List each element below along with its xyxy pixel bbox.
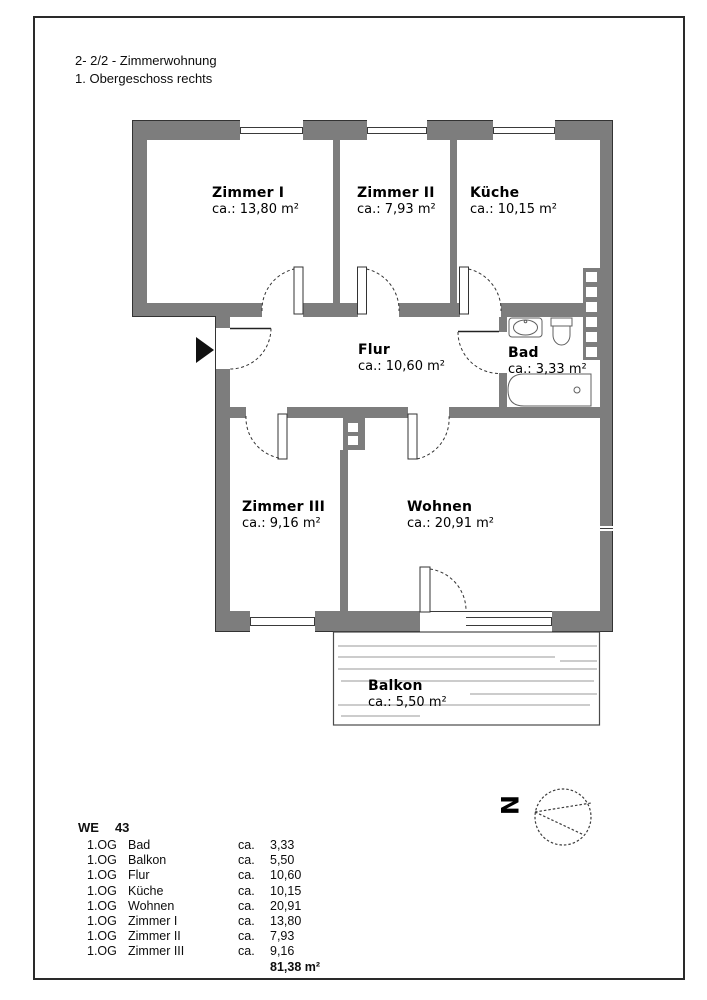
table-row: 1.OGZimmer IIca.7,93 bbox=[87, 929, 340, 944]
unit-heading: WE43 bbox=[78, 820, 129, 835]
table-row: 1.OGBalkonca.5,50 bbox=[87, 853, 340, 868]
door-zimmer1 bbox=[262, 267, 303, 314]
room-area: ca.: 7,93 m² bbox=[357, 201, 436, 219]
area-table: 1.OGBadca.3,33 1.OGBalkonca.5,50 1.OGFlu… bbox=[87, 838, 340, 975]
floorplan-page: { "header": { "line1": "2- 2/2 - Zimmerw… bbox=[0, 0, 707, 1000]
cell-ca: ca. bbox=[238, 884, 270, 899]
unit-label: WE bbox=[78, 820, 99, 835]
cell-floor: 1.OG bbox=[87, 944, 128, 959]
window-zimmer3 bbox=[250, 617, 315, 626]
room-area: ca.: 5,50 m² bbox=[368, 694, 447, 712]
room-name: Zimmer II bbox=[357, 185, 436, 201]
cell-floor: 1.OG bbox=[87, 838, 128, 853]
cell-room: Zimmer II bbox=[128, 929, 238, 944]
cell-value: 10,15 bbox=[270, 884, 340, 899]
room-name: Flur bbox=[358, 342, 445, 358]
cell-value: 9,16 bbox=[270, 944, 340, 959]
cell-room: Zimmer I bbox=[128, 914, 238, 929]
room-name: Balkon bbox=[368, 678, 447, 694]
sink bbox=[509, 318, 542, 337]
cell-floor: 1.OG bbox=[87, 853, 128, 868]
room-name: Küche bbox=[470, 185, 557, 201]
cell-floor: 1.OG bbox=[87, 914, 128, 929]
entrance-door bbox=[230, 329, 271, 370]
window-right-wall-notch bbox=[600, 526, 613, 531]
cell-value: 5,50 bbox=[270, 853, 340, 868]
cell-ca: ca. bbox=[238, 868, 270, 883]
unit-number: 43 bbox=[115, 820, 129, 835]
cell-ca: ca. bbox=[238, 929, 270, 944]
window-zimmer2 bbox=[367, 127, 427, 134]
cell-value: 7,93 bbox=[270, 929, 340, 944]
room-name: Zimmer III bbox=[242, 499, 325, 515]
label-kueche: Küche ca.: 10,15 m² bbox=[470, 185, 557, 219]
label-bad: Bad ca.: 3,33 m² bbox=[508, 345, 587, 379]
door-wohnen bbox=[408, 414, 449, 459]
cell-value: 20,91 bbox=[270, 899, 340, 914]
cell-room: Flur bbox=[128, 868, 238, 883]
room-area: ca.: 10,15 m² bbox=[470, 201, 557, 219]
room-area: ca.: 9,16 m² bbox=[242, 515, 325, 533]
table-row: 1.OGZimmer Ica.13,80 bbox=[87, 914, 340, 929]
doors bbox=[230, 267, 501, 612]
table-total-row: 81,38 m² bbox=[87, 960, 340, 975]
cell-floor: 1.OG bbox=[87, 899, 128, 914]
table-row: 1.OGKücheca.10,15 bbox=[87, 884, 340, 899]
door-balkon bbox=[420, 567, 466, 612]
cell-value: 3,33 bbox=[270, 838, 340, 853]
label-zimmer1: Zimmer I ca.: 13,80 m² bbox=[212, 185, 299, 219]
window-zimmer1 bbox=[240, 127, 303, 134]
door-kueche bbox=[460, 267, 502, 314]
room-name: Bad bbox=[508, 345, 587, 361]
cell-room: Wohnen bbox=[128, 899, 238, 914]
cell-floor: 1.OG bbox=[87, 929, 128, 944]
north-arrow bbox=[535, 789, 591, 845]
room-name: Wohnen bbox=[407, 499, 494, 515]
cell-floor: 1.OG bbox=[87, 868, 128, 883]
door-zimmer2 bbox=[358, 267, 400, 314]
cell-floor: 1.OG bbox=[87, 884, 128, 899]
door-zimmer3 bbox=[246, 414, 287, 459]
table-row: 1.OGWohnenca.20,91 bbox=[87, 899, 340, 914]
cell-ca: ca. bbox=[238, 899, 270, 914]
room-area: ca.: 13,80 m² bbox=[212, 201, 299, 219]
cell-ca: ca. bbox=[238, 944, 270, 959]
cell-room: Küche bbox=[128, 884, 238, 899]
cell-room: Balkon bbox=[128, 853, 238, 868]
label-balkon: Balkon ca.: 5,50 m² bbox=[368, 678, 447, 712]
room-name: Zimmer I bbox=[212, 185, 299, 201]
cell-value: 13,80 bbox=[270, 914, 340, 929]
window-kueche bbox=[493, 127, 555, 134]
door-bad bbox=[458, 332, 499, 374]
table-row: 1.OGBadca.3,33 bbox=[87, 838, 340, 853]
cell-ca: ca. bbox=[238, 838, 270, 853]
label-zimmer3: Zimmer III ca.: 9,16 m² bbox=[242, 499, 325, 533]
cell-ca: ca. bbox=[238, 914, 270, 929]
cell-value: 10,60 bbox=[270, 868, 340, 883]
room-area: ca.: 20,91 m² bbox=[407, 515, 494, 533]
window-wohnen bbox=[430, 612, 552, 627]
label-wohnen: Wohnen ca.: 20,91 m² bbox=[407, 499, 494, 533]
room-area: ca.: 10,60 m² bbox=[358, 358, 445, 376]
north-letter: N bbox=[496, 792, 522, 818]
label-flur: Flur ca.: 10,60 m² bbox=[358, 342, 445, 376]
total-area: 81,38 m² bbox=[270, 960, 340, 975]
cell-room: Bad bbox=[128, 838, 238, 853]
room-area: ca.: 3,33 m² bbox=[508, 361, 587, 379]
cell-room: Zimmer III bbox=[128, 944, 238, 959]
label-zimmer2: Zimmer II ca.: 7,93 m² bbox=[357, 185, 436, 219]
shaft-middle bbox=[343, 418, 365, 450]
toilet bbox=[551, 318, 572, 345]
entrance-arrow-icon bbox=[196, 337, 214, 363]
cell-ca: ca. bbox=[238, 853, 270, 868]
table-row: 1.OGZimmer IIIca.9,16 bbox=[87, 944, 340, 959]
table-row: 1.OGFlurca.10,60 bbox=[87, 868, 340, 883]
